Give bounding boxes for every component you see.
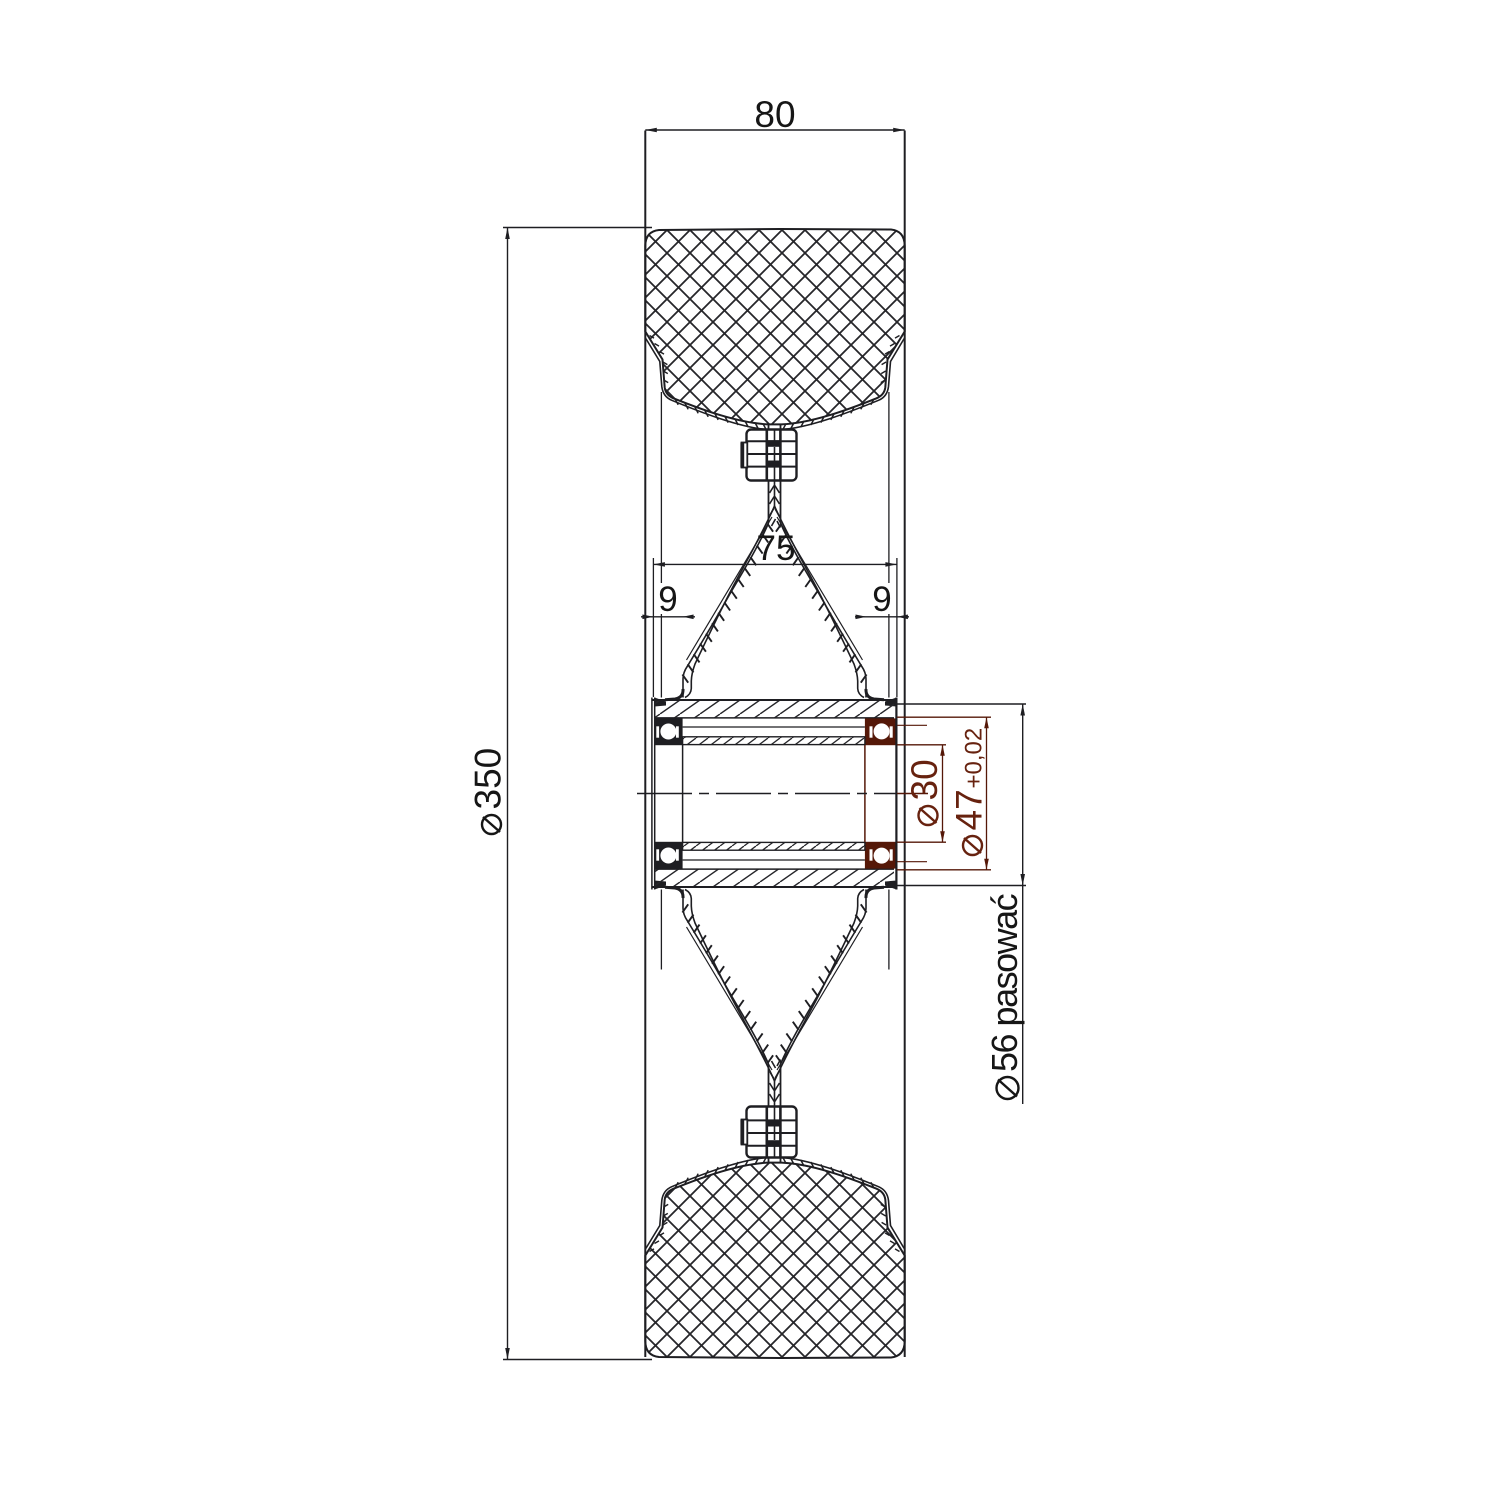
svg-text:30: 30 <box>904 759 945 800</box>
svg-text:+0,02: +0,02 <box>961 728 988 789</box>
svg-text:350: 350 <box>468 748 509 810</box>
svg-text:9: 9 <box>658 580 677 619</box>
svg-text:9: 9 <box>872 580 891 619</box>
svg-text:47: 47 <box>949 789 990 830</box>
svg-text:75: 75 <box>757 529 796 568</box>
svg-text:80: 80 <box>754 94 795 135</box>
svg-text:56 pasować: 56 pasować <box>984 893 1025 1072</box>
